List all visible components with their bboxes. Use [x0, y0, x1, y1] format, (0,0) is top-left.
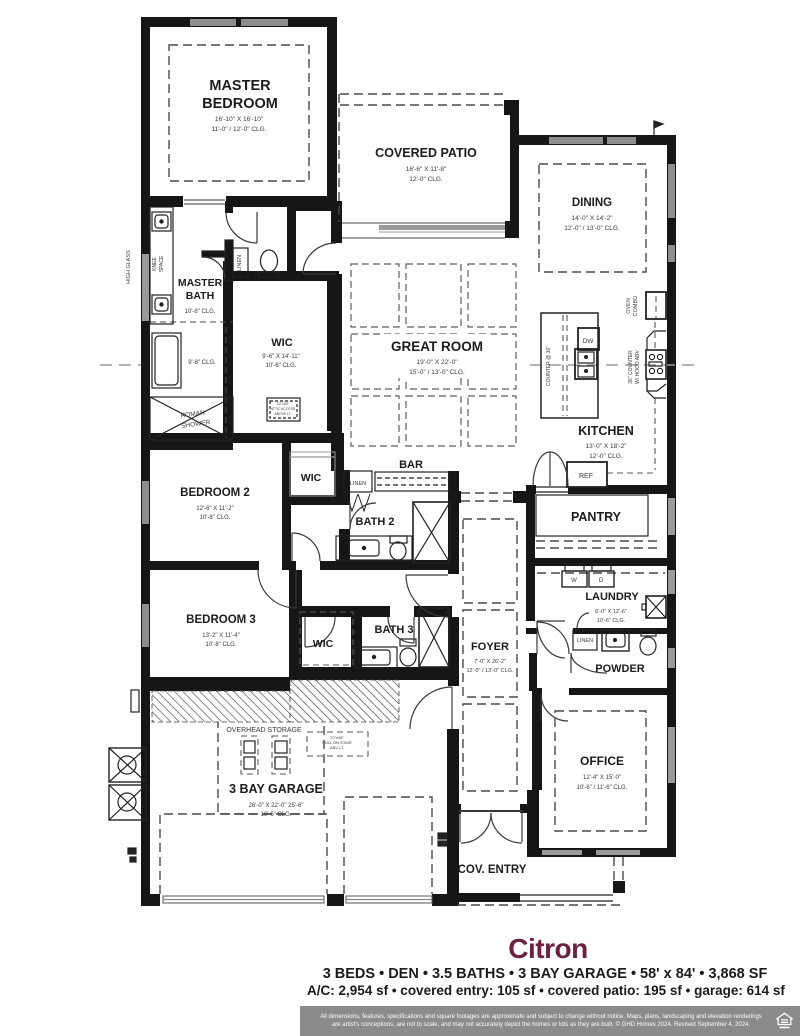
svg-text:PANTRY: PANTRY — [571, 510, 622, 524]
svg-text:LINEN: LINEN — [237, 255, 243, 271]
svg-text:26'-0" X 22'-0" 25'-6": 26'-0" X 22'-0" 25'-6" — [249, 803, 304, 809]
svg-text:ATTIC ACCESS: ATTIC ACCESS — [271, 407, 296, 411]
svg-text:19'-0" X 22'-0": 19'-0" X 22'-0" — [416, 359, 458, 366]
svg-text:COMBO: COMBO — [633, 295, 639, 317]
svg-text:COVERED PATIO: COVERED PATIO — [375, 146, 477, 160]
svg-text:10'-8" CLG.: 10'-8" CLG. — [200, 515, 231, 521]
svg-text:3 BAY GARAGE: 3 BAY GARAGE — [229, 782, 323, 796]
svg-text:BAR: BAR — [399, 459, 423, 471]
svg-text:11'-0" / 12'-0" CLG.: 11'-0" / 12'-0" CLG. — [211, 126, 266, 133]
svg-text:BATH 3: BATH 3 — [375, 624, 414, 636]
svg-text:10'-8" CLG.: 10'-8" CLG. — [206, 642, 237, 648]
svg-text:BEDROOM 3: BEDROOM 3 — [186, 614, 256, 626]
svg-text:MASTER: MASTER — [209, 78, 271, 94]
svg-text:7'-0" X 26'-2": 7'-0" X 26'-2" — [474, 659, 506, 665]
svg-text:12'-4" X 15'-0": 12'-4" X 15'-0" — [583, 775, 621, 781]
svg-text:13'-2" X 11'-4": 13'-2" X 11'-4" — [202, 633, 239, 639]
svg-text:9'-8" CLG.: 9'-8" CLG. — [188, 360, 216, 366]
svg-text:GREAT ROOM: GREAT ROOM — [391, 339, 483, 354]
svg-text:BATH: BATH — [186, 290, 214, 302]
svg-text:KNEE: KNEE — [152, 257, 158, 271]
svg-text:10'-6" / 11'-6" CLG.: 10'-6" / 11'-6" CLG. — [577, 785, 628, 791]
svg-text:10'-6" CLG.: 10'-6" CLG. — [261, 812, 292, 818]
svg-text:SPACE: SPACE — [159, 255, 165, 272]
svg-text:BEDROOM: BEDROOM — [202, 96, 278, 112]
svg-text:MASTER: MASTER — [178, 277, 223, 289]
svg-text:OVERHEAD STORAGE: OVERHEAD STORAGE — [226, 727, 302, 734]
svg-text:WIC: WIC — [313, 638, 334, 650]
svg-text:SHOWER: SHOWER — [181, 419, 211, 430]
svg-text:W: W — [571, 578, 577, 584]
svg-text:LINEN: LINEN — [577, 638, 593, 644]
svg-text:22"x54": 22"x54" — [277, 402, 289, 406]
svg-text:BEDROOM 2: BEDROOM 2 — [180, 487, 250, 499]
svg-text:6'-0" X 12'-6": 6'-0" X 12'-6" — [595, 609, 627, 615]
svg-text:12'-0" / 13'-0" CLG.: 12'-0" / 13'-0" CLG. — [564, 225, 620, 232]
svg-text:DW: DW — [583, 338, 595, 345]
svg-text:9'-6" X 14'-11": 9'-6" X 14'-11" — [262, 354, 299, 360]
svg-text:16'-10" X 16'-10": 16'-10" X 16'-10" — [215, 116, 264, 123]
svg-text:15'-0" / 13'-0" CLG.: 15'-0" / 13'-0" CLG. — [409, 369, 465, 376]
svg-text:13'-0" X 18'-2": 13'-0" X 18'-2" — [585, 443, 627, 450]
svg-text:10'-6" CLG.: 10'-6" CLG. — [266, 363, 297, 369]
svg-text:COUNTER @ 36": COUNTER @ 36" — [546, 346, 552, 386]
svg-text:W/ HOOD ABV: W/ HOOD ABV — [635, 350, 641, 384]
svg-text:WIC: WIC — [301, 472, 322, 484]
svg-text:16'-6" X 11'-8": 16'-6" X 11'-8" — [406, 166, 447, 173]
svg-text:OFFICE: OFFICE — [580, 754, 624, 768]
svg-text:12'-0" CLG.: 12'-0" CLG. — [589, 453, 623, 460]
svg-text:COV. ENTRY: COV. ENTRY — [458, 864, 527, 876]
svg-text:12'-0" / 13'-0" CLG.: 12'-0" / 13'-0" CLG. — [467, 668, 514, 674]
svg-text:REF: REF — [579, 473, 593, 480]
svg-text:KITCHEN: KITCHEN — [578, 424, 634, 438]
svg-text:LINEN: LINEN — [350, 481, 366, 487]
svg-text:WIC: WIC — [271, 337, 292, 349]
svg-text:12'-6" X 11'-2": 12'-6" X 11'-2" — [196, 506, 233, 512]
svg-text:ABV LT.: ABV LT. — [330, 745, 344, 750]
svg-text:10'-6" CLG.: 10'-6" CLG. — [597, 618, 626, 624]
svg-text:36" COUNTER: 36" COUNTER — [628, 350, 634, 384]
svg-text:FOYER: FOYER — [471, 641, 509, 653]
svg-text:LAUNDRY: LAUNDRY — [585, 591, 639, 603]
svg-text:ABOVE LT.: ABOVE LT. — [275, 412, 292, 416]
svg-text:D: D — [599, 578, 604, 584]
svg-text:10'-8" CLG.: 10'-8" CLG. — [185, 309, 216, 315]
svg-text:OVEN: OVEN — [626, 298, 632, 314]
svg-text:POWDER: POWDER — [595, 663, 645, 675]
svg-text:14'-0" X 14'-2": 14'-0" X 14'-2" — [571, 215, 613, 222]
svg-text:BATH 2: BATH 2 — [356, 516, 395, 528]
svg-text:12'-0" CLG.: 12'-0" CLG. — [409, 176, 443, 183]
svg-text:HIGH GLASS: HIGH GLASS — [126, 250, 132, 284]
svg-text:DINING: DINING — [572, 197, 612, 209]
